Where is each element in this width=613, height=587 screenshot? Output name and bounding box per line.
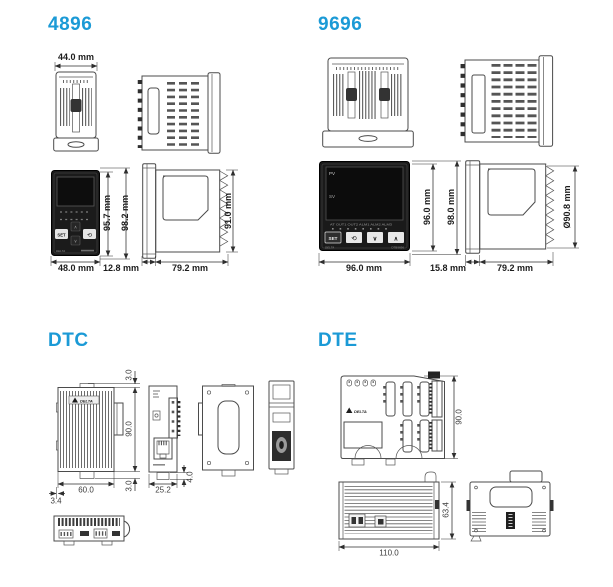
dim-4896-bezel-depth: 12.8 mm bbox=[103, 263, 139, 273]
dim-dtc-latch: 4.0 bbox=[186, 471, 195, 482]
dim-9696-front-width: 96.0 mm bbox=[346, 263, 382, 273]
dim-dtc-bottom-clip: 3.0 bbox=[125, 480, 134, 491]
dim-dtc-width: 60.0 bbox=[78, 486, 94, 495]
dim-dtc-side-offset: 3.4 bbox=[50, 497, 61, 506]
dim-dtc-top-clip: 3.0 bbox=[125, 369, 134, 380]
dim-4896-outer-height: 98.2 mm bbox=[120, 195, 130, 231]
dim-9696-bezel-depth: 15.8 mm bbox=[430, 263, 466, 273]
dim-9696-outer-height: 98.0 mm bbox=[446, 189, 456, 225]
dimensions-page: 4896 9696 DTC DTE SET ⟲ bbox=[0, 0, 613, 587]
dim-4896-inner-height: 95.7 mm bbox=[102, 195, 112, 231]
dim-4896-case-height: 91.0 mm bbox=[223, 193, 233, 229]
dim-dte-height: 90.0 bbox=[455, 409, 464, 425]
dim-4896-front-width: 48.0 mm bbox=[58, 263, 94, 273]
dimension-lines bbox=[0, 0, 613, 587]
dim-dte-depth: 63.4 bbox=[442, 502, 451, 518]
dim-4896-body-depth: 79.2 mm bbox=[172, 263, 208, 273]
dim-9696-inner-height: 96.0 mm bbox=[422, 189, 432, 225]
dim-dte-width: 110.0 bbox=[379, 549, 398, 558]
dim-4896-top-width: 44.0 mm bbox=[58, 52, 94, 62]
dim-dtc-depth: 25.2 bbox=[155, 486, 171, 495]
dim-9696-body-depth: 79.2 mm bbox=[497, 263, 533, 273]
dim-dtc-height: 90.0 bbox=[125, 421, 134, 437]
dim-9696-case-height: Ø90.8 mm bbox=[562, 185, 572, 228]
